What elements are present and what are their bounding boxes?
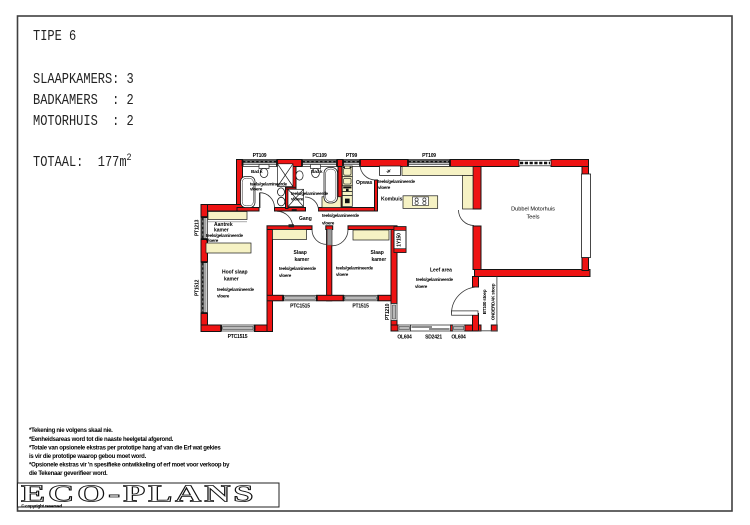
svg-text:Bad k: Bad k <box>311 169 323 174</box>
svg-text:teels/gelamineerde: teels/gelamineerde <box>416 277 454 282</box>
svg-text:PT109: PT109 <box>253 153 267 159</box>
svg-text:vloere: vloere <box>250 187 263 192</box>
svg-text:PT1210: PT1210 <box>385 303 391 320</box>
svg-text:kamer: kamer <box>295 257 310 263</box>
svg-text:PT1512: PT1512 <box>195 279 201 296</box>
svg-text:PT1515: PT1515 <box>352 304 369 310</box>
svg-text:© copyright reserved: © copyright reserved <box>21 503 62 509</box>
svg-text:PC109: PC109 <box>312 153 327 159</box>
svg-text:TOTAAL: 177m2: TOTAAL: 177m2 <box>33 151 132 171</box>
svg-text:1Y150: 1Y150 <box>396 233 402 247</box>
svg-text:PTC1515: PTC1515 <box>228 334 248 340</box>
svg-text:OL604: OL604 <box>397 335 412 341</box>
svg-text:vloere: vloere <box>217 294 230 299</box>
svg-text:BADKAMERS : 2: BADKAMERS : 2 <box>33 93 134 109</box>
svg-text:Gang: Gang <box>299 216 312 222</box>
svg-text:kamer: kamer <box>372 257 387 263</box>
svg-text:teels/gelamineerde: teels/gelamineerde <box>336 266 374 271</box>
svg-text:teels/gelamineerde: teels/gelamineerde <box>378 179 416 184</box>
svg-text:vloere: vloere <box>415 284 428 289</box>
svg-text:Slaap: Slaap <box>371 250 384 256</box>
svg-text:Leef area: Leef area <box>430 268 452 274</box>
svg-text:TIPE 6: TIPE 6 <box>33 29 76 45</box>
svg-text:vloere: vloere <box>336 272 349 277</box>
svg-text:SLAAPKAMERS: 3: SLAAPKAMERS: 3 <box>33 72 134 88</box>
svg-text:*Eenheidsareas word tot die na: *Eenheidsareas word tot die naaste heelg… <box>29 437 174 443</box>
svg-text:PT1213: PT1213 <box>195 219 201 236</box>
svg-text:Kombuis: Kombuis <box>381 197 403 203</box>
svg-text:Dubbel Motorhuis: Dubbel Motorhuis <box>511 207 555 213</box>
svg-text:is vir die prototipe waarop ge: is vir die prototipe waarop gebou moet w… <box>29 454 147 460</box>
svg-text:Bad k: Bad k <box>251 169 263 174</box>
svg-text:vloere: vloere <box>279 273 292 278</box>
svg-text:vloere: vloere <box>378 185 391 190</box>
svg-text:vloere: vloere <box>206 238 219 243</box>
svg-text:vloere: vloere <box>322 221 335 226</box>
svg-text:ONDERDAK stoep: ONDERDAK stoep <box>491 283 496 320</box>
svg-text:PTC1515: PTC1515 <box>290 304 310 310</box>
svg-text:BT100 stoep: BT100 stoep <box>482 289 487 314</box>
svg-text:teels/gelamineerde: teels/gelamineerde <box>279 266 317 271</box>
svg-text:Hoof slaap: Hoof slaap <box>222 270 248 276</box>
svg-text:OL604: OL604 <box>451 335 466 341</box>
svg-text:teels/gelamineerde: teels/gelamineerde <box>291 191 329 196</box>
svg-text:vloere: vloere <box>291 197 304 202</box>
svg-text:Teels: Teels <box>526 215 539 221</box>
svg-text:*Opsionele ekstras vir 'n spes: *Opsionele ekstras vir 'n spesifieke ont… <box>29 463 230 469</box>
svg-text:die Tekenaar geverifieer word.: die Tekenaar geverifieer word. <box>29 471 108 477</box>
svg-text:*Totale van opsionele ekstras: *Totale van opsionele ekstras per protot… <box>29 445 221 451</box>
svg-text:kamer: kamer <box>224 277 239 283</box>
svg-text:teels/gelamineerde: teels/gelamineerde <box>322 213 360 218</box>
svg-text:teels/gelamineerde: teels/gelamineerde <box>217 287 255 292</box>
svg-text:*Tekening nie volgens skaal ni: *Tekening nie volgens skaal nie. <box>29 428 113 434</box>
svg-text:MOTORHUIS : 2: MOTORHUIS : 2 <box>33 114 134 130</box>
svg-text:PT99: PT99 <box>346 153 358 159</box>
svg-text:Opwas: Opwas <box>356 180 373 186</box>
svg-text:Slaap: Slaap <box>294 250 307 256</box>
svg-text:SD2421: SD2421 <box>425 335 442 341</box>
svg-text:PT109: PT109 <box>422 153 436 159</box>
